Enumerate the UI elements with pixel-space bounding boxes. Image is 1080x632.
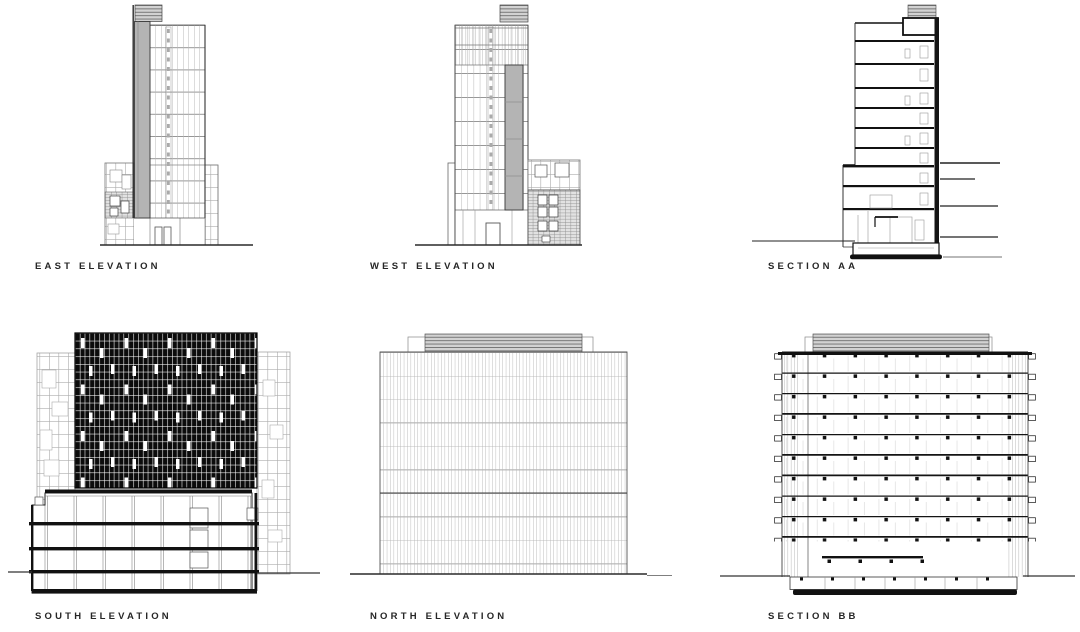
south-elevation-drawing <box>30 330 322 580</box>
west-elevation-label: WEST ELEVATION <box>370 261 498 272</box>
podium-section <box>29 490 259 594</box>
foundation <box>850 243 942 259</box>
section-body <box>774 352 1036 578</box>
background-building-left <box>37 353 75 505</box>
section-body <box>843 23 939 247</box>
rooftop-louver <box>408 334 593 352</box>
left-wing <box>448 163 455 245</box>
annex <box>205 165 218 245</box>
mezzanine-slab <box>822 556 923 558</box>
north-elevation-drawing <box>350 330 680 580</box>
rooftop-louver <box>135 5 162 22</box>
basement <box>790 577 1017 595</box>
background-building <box>105 163 134 245</box>
section-cut-wall <box>935 18 940 255</box>
section-bb-label: SECTION BB <box>768 611 859 622</box>
section-bb-drawing <box>715 330 1080 580</box>
roof-slab <box>778 352 1032 355</box>
rooftop-louver <box>903 5 938 35</box>
rooftop-louver <box>805 334 992 352</box>
east-elevation-drawing <box>30 5 260 250</box>
elevator-overrun <box>903 18 938 35</box>
brick-annex <box>528 160 580 245</box>
background-building-right <box>257 352 290 574</box>
core-band <box>505 65 523 210</box>
left-balcony-tabs <box>774 352 782 542</box>
dark-screen-facade <box>75 333 257 488</box>
rooftop-louver <box>500 5 528 22</box>
north-elevation-label: NORTH ELEVATION <box>370 611 507 622</box>
west-elevation-drawing <box>360 5 590 250</box>
foundation <box>793 590 1017 596</box>
adjacent-floor-lines <box>940 163 1002 257</box>
left-cut-wall <box>31 505 33 591</box>
ground-line <box>350 574 672 576</box>
foundation <box>32 589 257 594</box>
east-elevation-label: EAST ELEVATION <box>35 261 161 272</box>
south-elevation-label: SOUTH ELEVATION <box>35 611 172 622</box>
section-aa-label: SECTION AA <box>768 261 858 272</box>
drawing-sheet: EAST ELEVATION WEST ELEVATION SECTION AA… <box>0 0 1080 632</box>
section-aa-drawing <box>740 5 1010 250</box>
right-balcony-tabs <box>1028 352 1036 542</box>
parapet-notch <box>35 497 43 505</box>
core-band <box>133 5 150 218</box>
right-cut-wall <box>255 493 258 591</box>
floor-slabs-and-columns <box>782 352 1028 542</box>
tower-facade <box>380 352 627 574</box>
